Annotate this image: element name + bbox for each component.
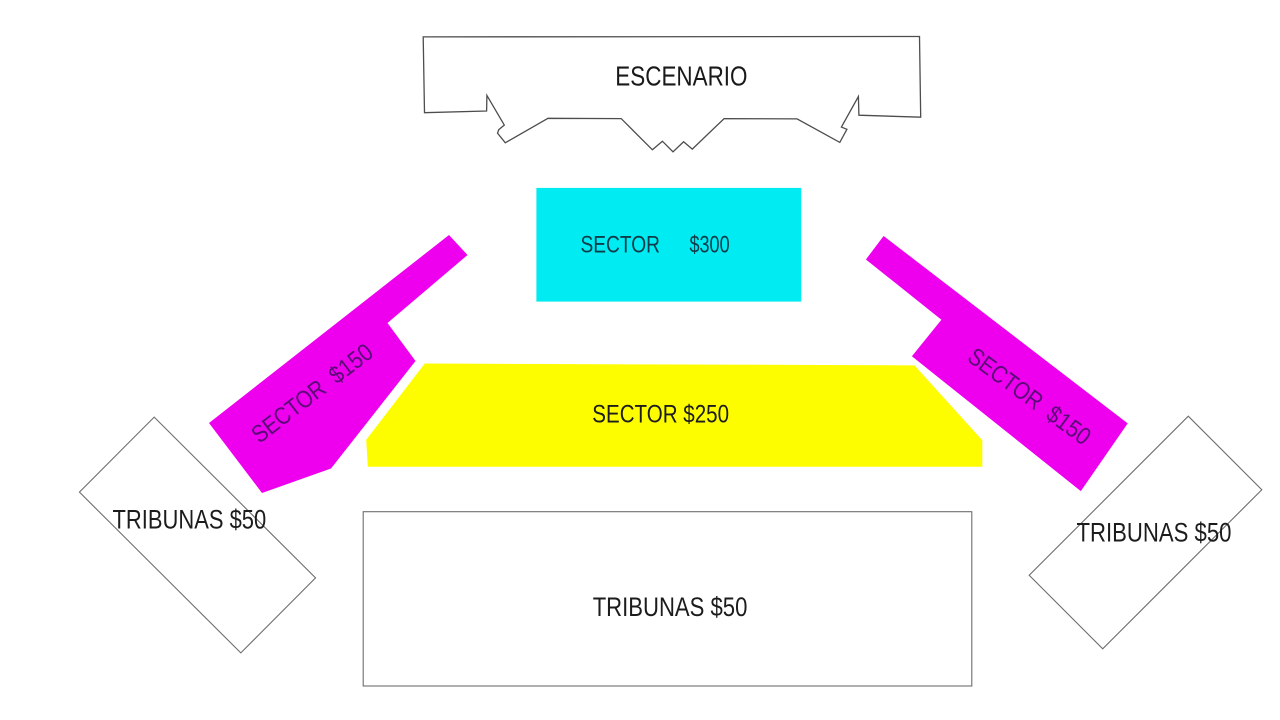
svg-text:$300: $300	[690, 232, 730, 258]
svg-text:TRIBUNAS $50: TRIBUNAS $50	[113, 504, 267, 534]
svg-text:TRIBUNAS $50: TRIBUNAS $50	[1077, 518, 1232, 548]
svg-text:TRIBUNAS $50: TRIBUNAS $50	[593, 592, 748, 622]
svg-text:SECTOR $250: SECTOR $250	[592, 402, 729, 429]
svg-text:SECTOR: SECTOR	[581, 232, 661, 258]
svg-text:ESCENARIO: ESCENARIO	[615, 61, 747, 92]
